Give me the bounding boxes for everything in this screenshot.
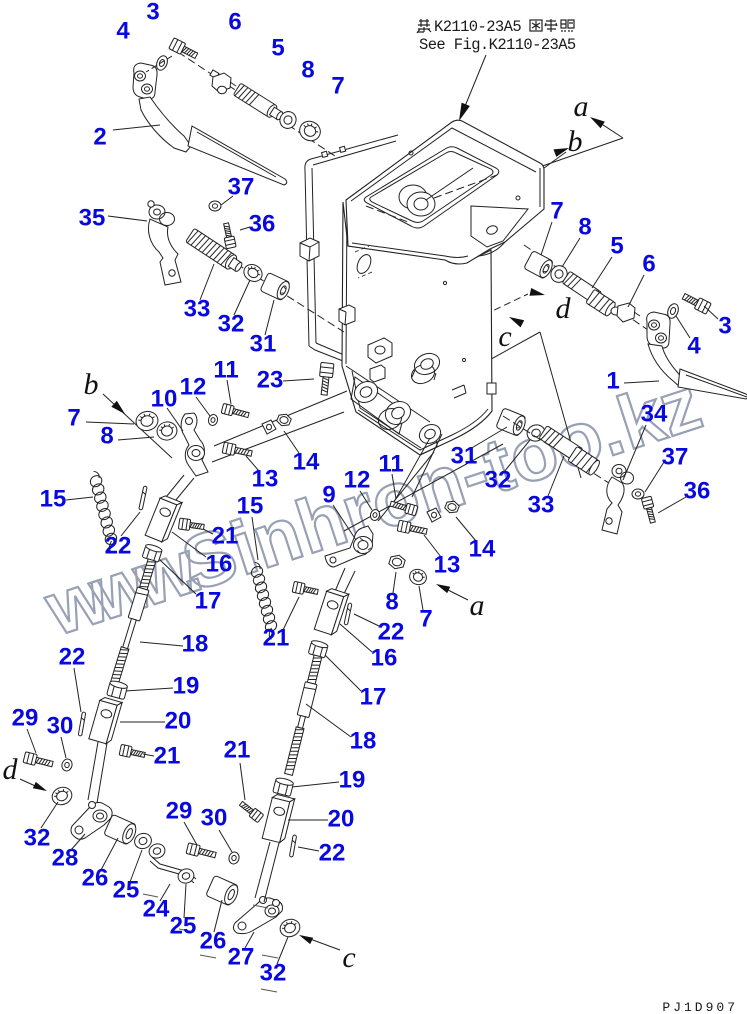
svg-text:a: a xyxy=(574,90,589,123)
svg-text:a: a xyxy=(470,589,485,622)
svg-text:PJ1D907: PJ1D907 xyxy=(662,1000,738,1014)
svg-text:9: 9 xyxy=(322,482,335,509)
svg-text:36: 36 xyxy=(249,211,276,238)
svg-text:26: 26 xyxy=(82,865,109,892)
svg-text:12: 12 xyxy=(344,467,371,494)
svg-text:7: 7 xyxy=(419,606,432,633)
svg-text:13: 13 xyxy=(252,466,279,493)
svg-text:21: 21 xyxy=(212,523,239,550)
svg-text:6: 6 xyxy=(642,251,655,278)
svg-text:8: 8 xyxy=(301,57,314,84)
svg-text:33: 33 xyxy=(184,296,211,323)
svg-text:7: 7 xyxy=(331,73,344,100)
svg-text:7: 7 xyxy=(550,198,563,225)
svg-text:20: 20 xyxy=(328,806,355,833)
svg-text:14: 14 xyxy=(469,536,496,563)
svg-text:c: c xyxy=(498,320,511,353)
svg-text:12: 12 xyxy=(180,374,207,401)
svg-text:7: 7 xyxy=(67,405,80,432)
svg-text:27: 27 xyxy=(228,944,255,971)
svg-text:3: 3 xyxy=(146,0,159,26)
svg-text:8: 8 xyxy=(100,423,113,450)
svg-text:13: 13 xyxy=(434,552,461,579)
svg-text:11: 11 xyxy=(213,357,238,384)
svg-text:10: 10 xyxy=(151,386,178,413)
svg-text:c: c xyxy=(342,941,355,974)
svg-text:K2110-23A5: K2110-23A5 xyxy=(434,18,521,36)
svg-text:22: 22 xyxy=(59,644,86,671)
svg-text:33: 33 xyxy=(528,492,555,519)
svg-text:21: 21 xyxy=(154,743,181,770)
svg-text:28: 28 xyxy=(52,845,79,872)
svg-text:25: 25 xyxy=(170,913,197,940)
svg-text:16: 16 xyxy=(206,551,233,578)
svg-text:8: 8 xyxy=(385,589,398,616)
svg-text:36: 36 xyxy=(684,478,711,505)
svg-text:2: 2 xyxy=(93,124,106,151)
svg-text:22: 22 xyxy=(378,619,405,646)
svg-text:b: b xyxy=(568,125,583,158)
svg-text:19: 19 xyxy=(339,767,366,794)
svg-text:22: 22 xyxy=(105,533,132,560)
svg-text:32: 32 xyxy=(218,311,245,338)
svg-text:30: 30 xyxy=(201,805,228,832)
svg-text:See Fig.K2110-23A5: See Fig.K2110-23A5 xyxy=(419,36,576,54)
svg-text:15: 15 xyxy=(237,493,264,520)
svg-text:25: 25 xyxy=(113,877,140,904)
svg-text:20: 20 xyxy=(165,708,192,735)
svg-text:1: 1 xyxy=(606,368,619,395)
svg-text:31: 31 xyxy=(451,443,478,470)
svg-text:5: 5 xyxy=(271,35,284,62)
svg-text:11: 11 xyxy=(378,451,403,478)
svg-text:d: d xyxy=(3,753,19,786)
svg-text:15: 15 xyxy=(40,486,67,513)
svg-text:32: 32 xyxy=(24,825,51,852)
svg-text:6: 6 xyxy=(228,9,241,36)
svg-text:19: 19 xyxy=(173,673,200,700)
svg-text:29: 29 xyxy=(12,705,39,732)
svg-text:d: d xyxy=(556,292,572,325)
svg-text:8: 8 xyxy=(578,214,591,241)
svg-text:17: 17 xyxy=(195,588,222,615)
svg-text:35: 35 xyxy=(79,205,106,232)
svg-text:4: 4 xyxy=(116,18,130,45)
svg-text:18: 18 xyxy=(350,728,377,755)
svg-text:37: 37 xyxy=(662,444,689,471)
svg-text:26: 26 xyxy=(200,928,227,955)
svg-text:23: 23 xyxy=(257,367,284,394)
svg-text:16: 16 xyxy=(371,645,398,672)
svg-text:34: 34 xyxy=(641,401,668,428)
svg-text:32: 32 xyxy=(485,467,512,494)
svg-text:4: 4 xyxy=(687,333,701,360)
svg-text:18: 18 xyxy=(182,631,209,658)
svg-text:5: 5 xyxy=(610,233,623,260)
svg-text:3: 3 xyxy=(718,313,731,340)
svg-text:22: 22 xyxy=(319,840,346,867)
svg-text:24: 24 xyxy=(143,896,170,923)
svg-text:14: 14 xyxy=(293,449,320,476)
svg-text:b: b xyxy=(84,368,99,401)
svg-text:30: 30 xyxy=(47,713,74,740)
svg-text:17: 17 xyxy=(360,684,387,711)
svg-text:32: 32 xyxy=(260,960,287,987)
svg-text:21: 21 xyxy=(263,625,290,652)
svg-text:21: 21 xyxy=(224,737,251,764)
svg-text:37: 37 xyxy=(228,174,255,201)
svg-text:31: 31 xyxy=(250,331,277,358)
svg-text:29: 29 xyxy=(166,798,193,825)
